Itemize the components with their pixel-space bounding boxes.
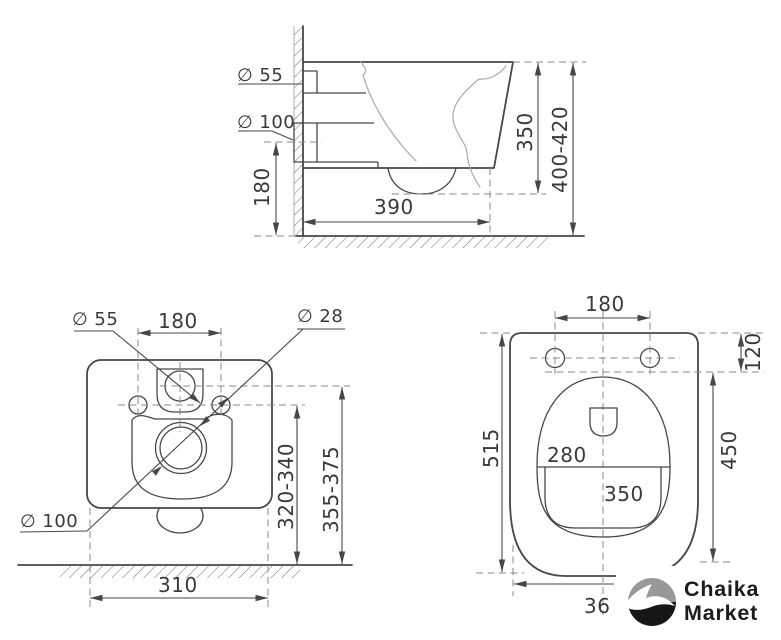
rear-dim-355-375-label: 355-375 [319, 446, 343, 533]
rear-bolt-diameter-label: ∅ 28 [297, 306, 343, 327]
rear-view: 180 ∅ 55 ∅ 28 ∅ 100 310 320-340 355-375 [18, 306, 352, 610]
wall-hatch [294, 26, 303, 236]
rear-dim-320-340-label: 320-340 [274, 443, 298, 530]
toilet-body-rear [87, 360, 272, 508]
side-dim-390-label: 390 [374, 195, 414, 219]
side-inlet-diameter-label: ∅ 55 [237, 65, 283, 86]
plan-dim-450-label: 450 [717, 430, 741, 470]
plan-dim-360-label: 36 [584, 594, 610, 618]
side-dim-180-label: 180 [250, 167, 274, 207]
bowl-underside-curve [388, 168, 456, 194]
outlet-pipe [294, 123, 378, 168]
side-dim-350-label: 350 [513, 112, 537, 152]
bowl-inner-funnel-curve [361, 62, 416, 161]
plan-dim-280-label: 280 [547, 443, 587, 467]
side-view: ∅ 55 ∅ 100 180 390 350 400-420 [237, 26, 586, 248]
logo: Chaika Market [616, 566, 781, 640]
plan-dim-180-label: 180 [585, 292, 625, 316]
technical-drawing-page: ∅ 55 ∅ 100 180 390 350 400-420 [0, 0, 781, 640]
plan-dim-515-label: 515 [479, 428, 503, 468]
rear-dim-310-label: 310 [158, 573, 198, 597]
rear-dim-180-label: 180 [158, 309, 198, 333]
plan-dim-120-label: 120 [741, 332, 765, 372]
logo-text-line1: Chaika [684, 577, 760, 601]
side-outlet-diameter-label: ∅ 100 [237, 112, 295, 133]
floor-hatch [298, 237, 548, 248]
rear-outlet-diameter-label: ∅ 100 [20, 511, 78, 532]
plan-dim-350-label: 350 [604, 482, 644, 506]
logo-text-line2: Market [684, 601, 758, 625]
side-dim-400-420-label: 400-420 [548, 106, 572, 193]
inlet-pipe [303, 71, 366, 93]
rear-inlet-diameter-label: ∅ 55 [72, 309, 118, 330]
toilet-dimension-drawing: ∅ 55 ∅ 100 180 390 350 400-420 [0, 0, 781, 640]
